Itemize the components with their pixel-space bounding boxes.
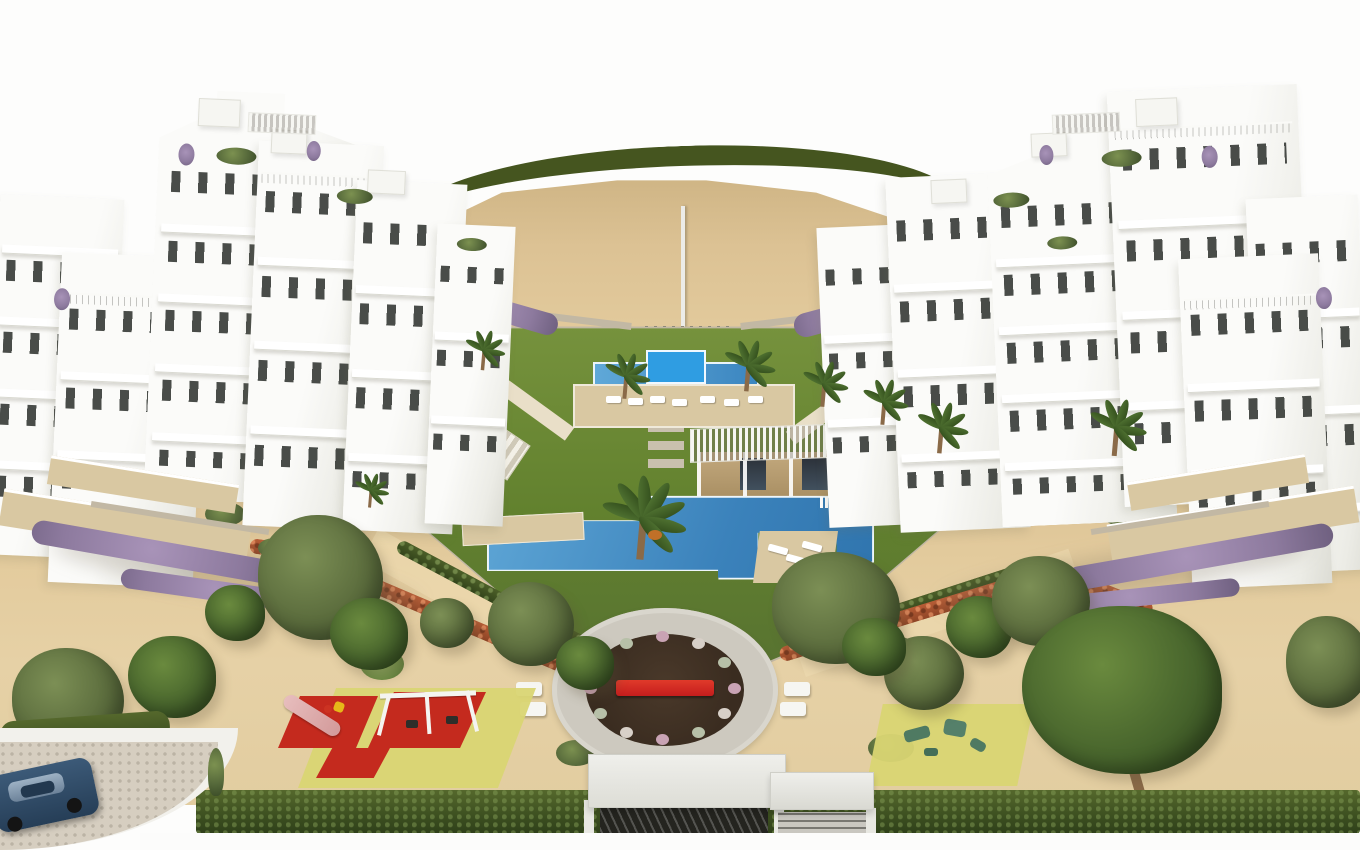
palm-tree bbox=[459, 331, 508, 373]
palm-tree bbox=[855, 380, 911, 428]
roof-bulkhead bbox=[1135, 97, 1178, 127]
tree bbox=[128, 636, 216, 718]
tree bbox=[556, 636, 614, 690]
balcony bbox=[1188, 379, 1320, 394]
tree bbox=[842, 618, 906, 676]
roof-pergola bbox=[1052, 112, 1121, 135]
tree bbox=[1022, 606, 1222, 774]
window-row bbox=[1194, 395, 1315, 421]
entrance-canopy-wing bbox=[770, 772, 874, 810]
palm-tree bbox=[1080, 400, 1150, 460]
entrance-canopy bbox=[588, 754, 786, 808]
tree bbox=[1286, 616, 1360, 708]
palm-dates bbox=[648, 530, 662, 540]
balcony-rail bbox=[1184, 293, 1316, 310]
palm-tree bbox=[716, 341, 779, 395]
palm-tree-large bbox=[590, 479, 692, 566]
cypress bbox=[208, 748, 224, 796]
tree bbox=[330, 598, 408, 670]
palm-tree bbox=[349, 474, 391, 510]
roof-bulkhead bbox=[930, 179, 967, 205]
palm-tree bbox=[909, 403, 972, 457]
palm-tree bbox=[795, 362, 851, 410]
tree bbox=[420, 598, 474, 648]
tree bbox=[205, 585, 265, 641]
window-row bbox=[1190, 310, 1311, 336]
palm-tree bbox=[597, 354, 653, 402]
scene bbox=[0, 0, 1360, 850]
bottom-margin bbox=[140, 833, 1360, 850]
